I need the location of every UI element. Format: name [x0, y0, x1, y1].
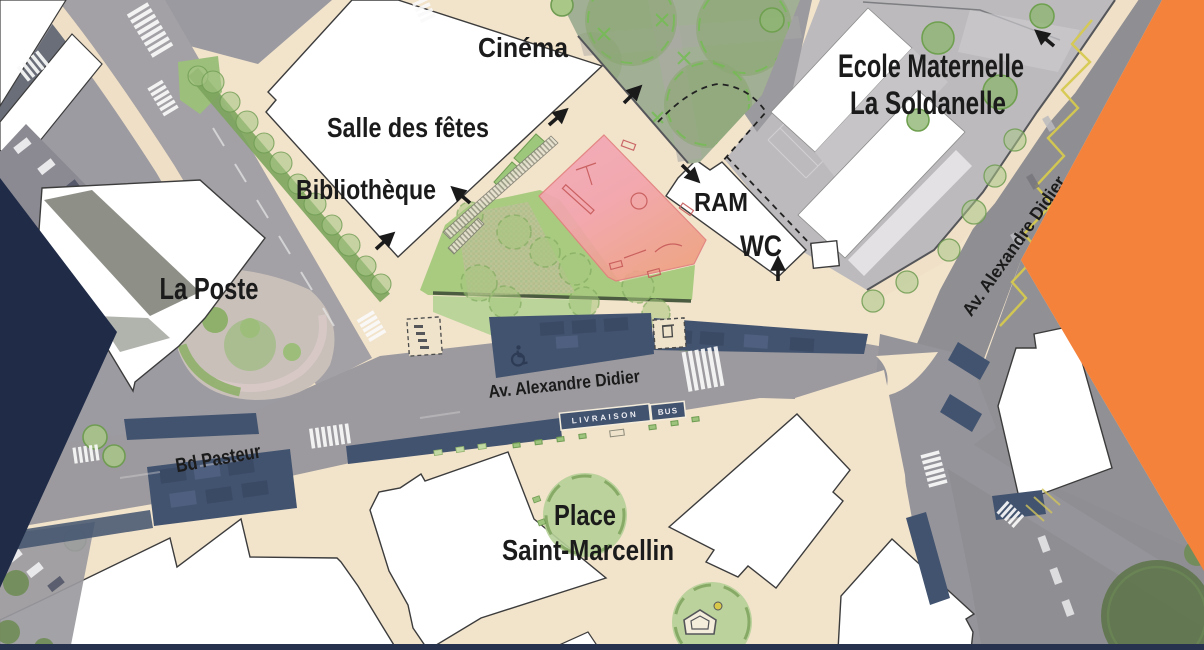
svg-text:Cinéma: Cinéma — [478, 32, 568, 63]
svg-text:La Poste: La Poste — [160, 271, 259, 306]
svg-text:Ecole Maternelle: Ecole Maternelle — [838, 48, 1024, 84]
svg-text:Salle des fêtes: Salle des fêtes — [327, 112, 489, 143]
svg-text:Bibliothèque: Bibliothèque — [296, 174, 436, 205]
svg-text:La Soldanelle: La Soldanelle — [850, 85, 1006, 121]
svg-text:Saint-Marcellin: Saint-Marcellin — [502, 535, 674, 567]
svg-text:WC: WC — [740, 230, 782, 263]
svg-text:Place: Place — [554, 500, 616, 532]
svg-text:RAM: RAM — [694, 187, 748, 217]
